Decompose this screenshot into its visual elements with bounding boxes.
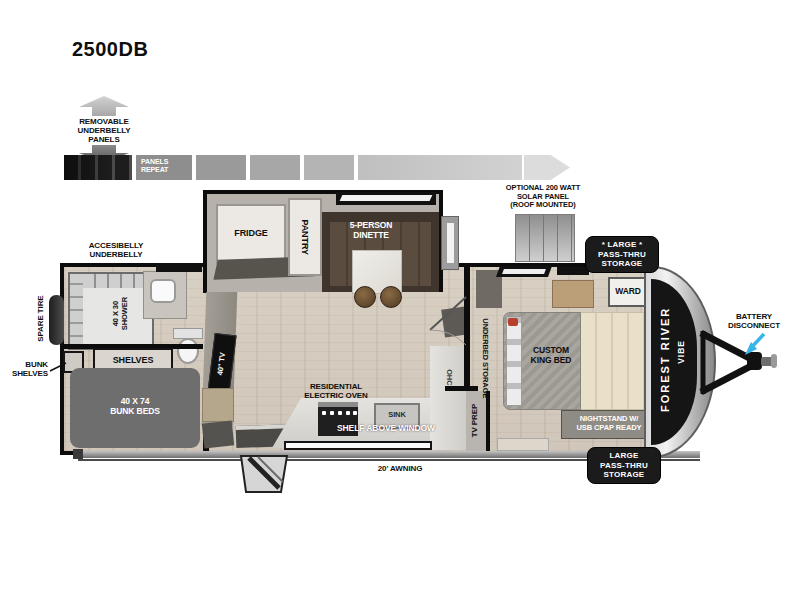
king-bed-label: CUSTOM KING BED <box>520 346 582 366</box>
bunk-shelves-label: BUNK SHELVES <box>2 360 48 378</box>
bunk-tv-label: 40" TV <box>216 352 227 376</box>
spare-tire-label: SPARE TIRE <box>36 287 45 351</box>
window-pane <box>340 195 433 201</box>
nightstand-label: NIGHTSTAND W/ USB CPAP READY <box>563 415 655 432</box>
toilet <box>177 338 199 364</box>
window-pane <box>447 223 454 263</box>
bunk-beds-label: 40 X 74 BUNK BEDS <box>80 397 190 417</box>
sink-label: SINK <box>376 411 418 420</box>
accent-pillow <box>508 318 518 326</box>
accessible-underbelly-label: ACCESIBELLY UNDERBELLY <box>63 241 169 259</box>
bunk-chair <box>202 388 234 422</box>
wall <box>464 263 470 391</box>
slide-window-right <box>441 216 459 270</box>
panels-repeat-segment: PANELS REPEAT <box>136 155 192 180</box>
kitchen-window <box>284 441 432 450</box>
up-arrow-icon <box>79 96 129 116</box>
panels-repeat-label: PANELS REPEAT <box>141 158 168 174</box>
storage-badge-top: * LARGE * PASS-THRU STORAGE <box>585 236 659 273</box>
brand-logo: FOREST RIVER <box>659 294 672 424</box>
bedroom-bench <box>497 438 549 451</box>
battery-arrow-icon <box>745 334 764 355</box>
awning-label: 20' AWNING <box>340 464 460 473</box>
pantry-label: PANTRY <box>300 202 310 272</box>
bedroom-window <box>496 266 552 277</box>
dinette-stool <box>354 286 376 308</box>
rail-end-cap <box>73 449 83 459</box>
oven-label: RESIDENTIAL ELECTRIC OVEN <box>288 382 384 400</box>
shower-glass-side <box>70 274 83 348</box>
underbelly-panel-dark-segment <box>64 155 132 180</box>
underbelly-panel-segment <box>358 155 522 180</box>
window-pane <box>502 269 546 274</box>
king-bed-platform <box>578 312 646 410</box>
bath-sink <box>150 279 176 303</box>
storage-badge-bottom: LARGE PASS-THRU STORAGE <box>587 447 661 484</box>
fridge-label: FRIDGE <box>218 228 284 238</box>
underbed-storage-label: UNDERBED STORAGE <box>481 318 490 398</box>
shelves-label: SHELVES <box>95 355 171 365</box>
underbelly-panel-segment <box>196 155 246 180</box>
solar-panel-label: OPTIONAL 200 WATT SOLAR PANEL (ROOF MOUN… <box>493 184 593 210</box>
slide-window-top <box>336 192 436 205</box>
bath-window <box>156 263 202 272</box>
solar-panel-icon <box>515 214 575 262</box>
brand-logo-sub: VIBE <box>677 332 687 372</box>
dinette-label: 5-PERSON DINETTE <box>326 221 416 241</box>
dinette-stool <box>380 286 402 308</box>
underbelly-panel-segment <box>304 155 354 180</box>
overhead-cabinet <box>552 280 594 308</box>
battery-disconnect-label: BATTERY DISCONNECT <box>722 312 786 330</box>
panels-arrow-icon <box>524 155 570 180</box>
spare-tire <box>49 295 64 345</box>
wardrobe-label: WARD <box>608 287 648 297</box>
underbelly-panel-segment <box>250 155 300 180</box>
entry-steps <box>241 456 287 492</box>
bedroom-window <box>557 267 589 275</box>
shelf-above-window-label: SHELF ABOVE WINDOW <box>306 424 466 434</box>
page-title: 2500DB <box>72 38 148 61</box>
floorplan-page: 2500DB REMOVABLE UNDERBELLY PANELS PANEL… <box>0 0 800 600</box>
bunk-ottoman <box>202 421 234 449</box>
removable-underbelly-label: REMOVABLE UNDERBELLY PANELS <box>61 117 147 145</box>
tv-prep-label: TV PREP <box>470 391 479 451</box>
